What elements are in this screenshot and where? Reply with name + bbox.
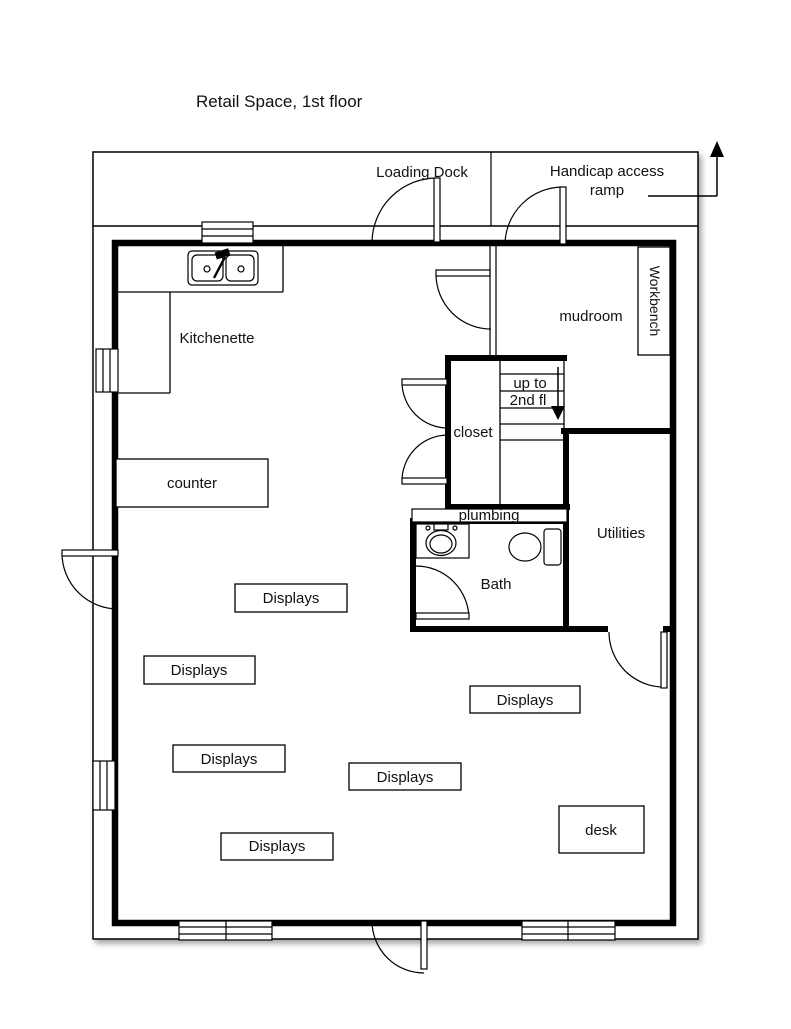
label-closet: closet [453,424,493,441]
toilet-tank [544,529,561,565]
label-mudroom: mudroom [559,308,622,325]
label-handicap-line2: ramp [590,182,624,199]
sink-drain-left [204,266,210,272]
door-leaf [402,379,447,385]
label-displays-5: Displays [377,769,434,786]
label-bath: Bath [481,576,512,593]
window-left-lower [93,761,115,810]
door-leaf [416,613,469,619]
label-stairs-line1: up to [513,375,546,392]
label-displays-6: Displays [249,838,306,855]
window-frame [96,349,118,392]
label-desk: desk [585,822,617,839]
window-frame [93,761,115,810]
bath-sink-basin-inner [430,535,452,553]
label-workbench: Workbench [647,266,663,337]
page-title: Retail Space, 1st floor [196,92,363,111]
label-displays-2: Displays [171,662,228,679]
bath-faucet-handle [426,526,430,530]
label-counter: counter [167,475,217,492]
label-handicap-line1: Handicap access [550,163,664,180]
floor-plan-canvas: Retail Space, 1st floor [0,0,791,1024]
window-bottom-left [179,921,272,940]
bath-faucet-handle [453,526,457,530]
door-leaf [661,632,667,688]
window-frame [202,222,253,243]
label-displays-4: Displays [201,751,258,768]
door-leaf [402,478,447,484]
door-leaf [434,178,440,242]
label-kitchenette: Kitchenette [179,330,254,347]
ramp-arrowhead [710,141,724,157]
door-leaf [560,187,566,244]
kitchen-sink [188,249,258,285]
label-displays-1: Displays [263,590,320,607]
label-utilities: Utilities [597,525,645,542]
label-stairs-line2: 2nd fl [510,392,547,409]
door-leaf [436,270,490,276]
window-top-kitchenette [202,222,253,243]
door-leaf [421,921,427,969]
floor-plan-page: Retail Space, 1st floor [0,0,791,1024]
label-plumbing: plumbing [459,507,520,524]
door-leaf [62,550,118,556]
sink-drain-right [238,266,244,272]
label-loading-dock: Loading Dock [376,164,468,181]
window-left-upper [96,349,118,392]
label-displays-3: Displays [497,692,554,709]
bath-faucet [434,524,448,530]
window-bottom-right [522,921,615,940]
toilet-bowl [509,533,541,561]
